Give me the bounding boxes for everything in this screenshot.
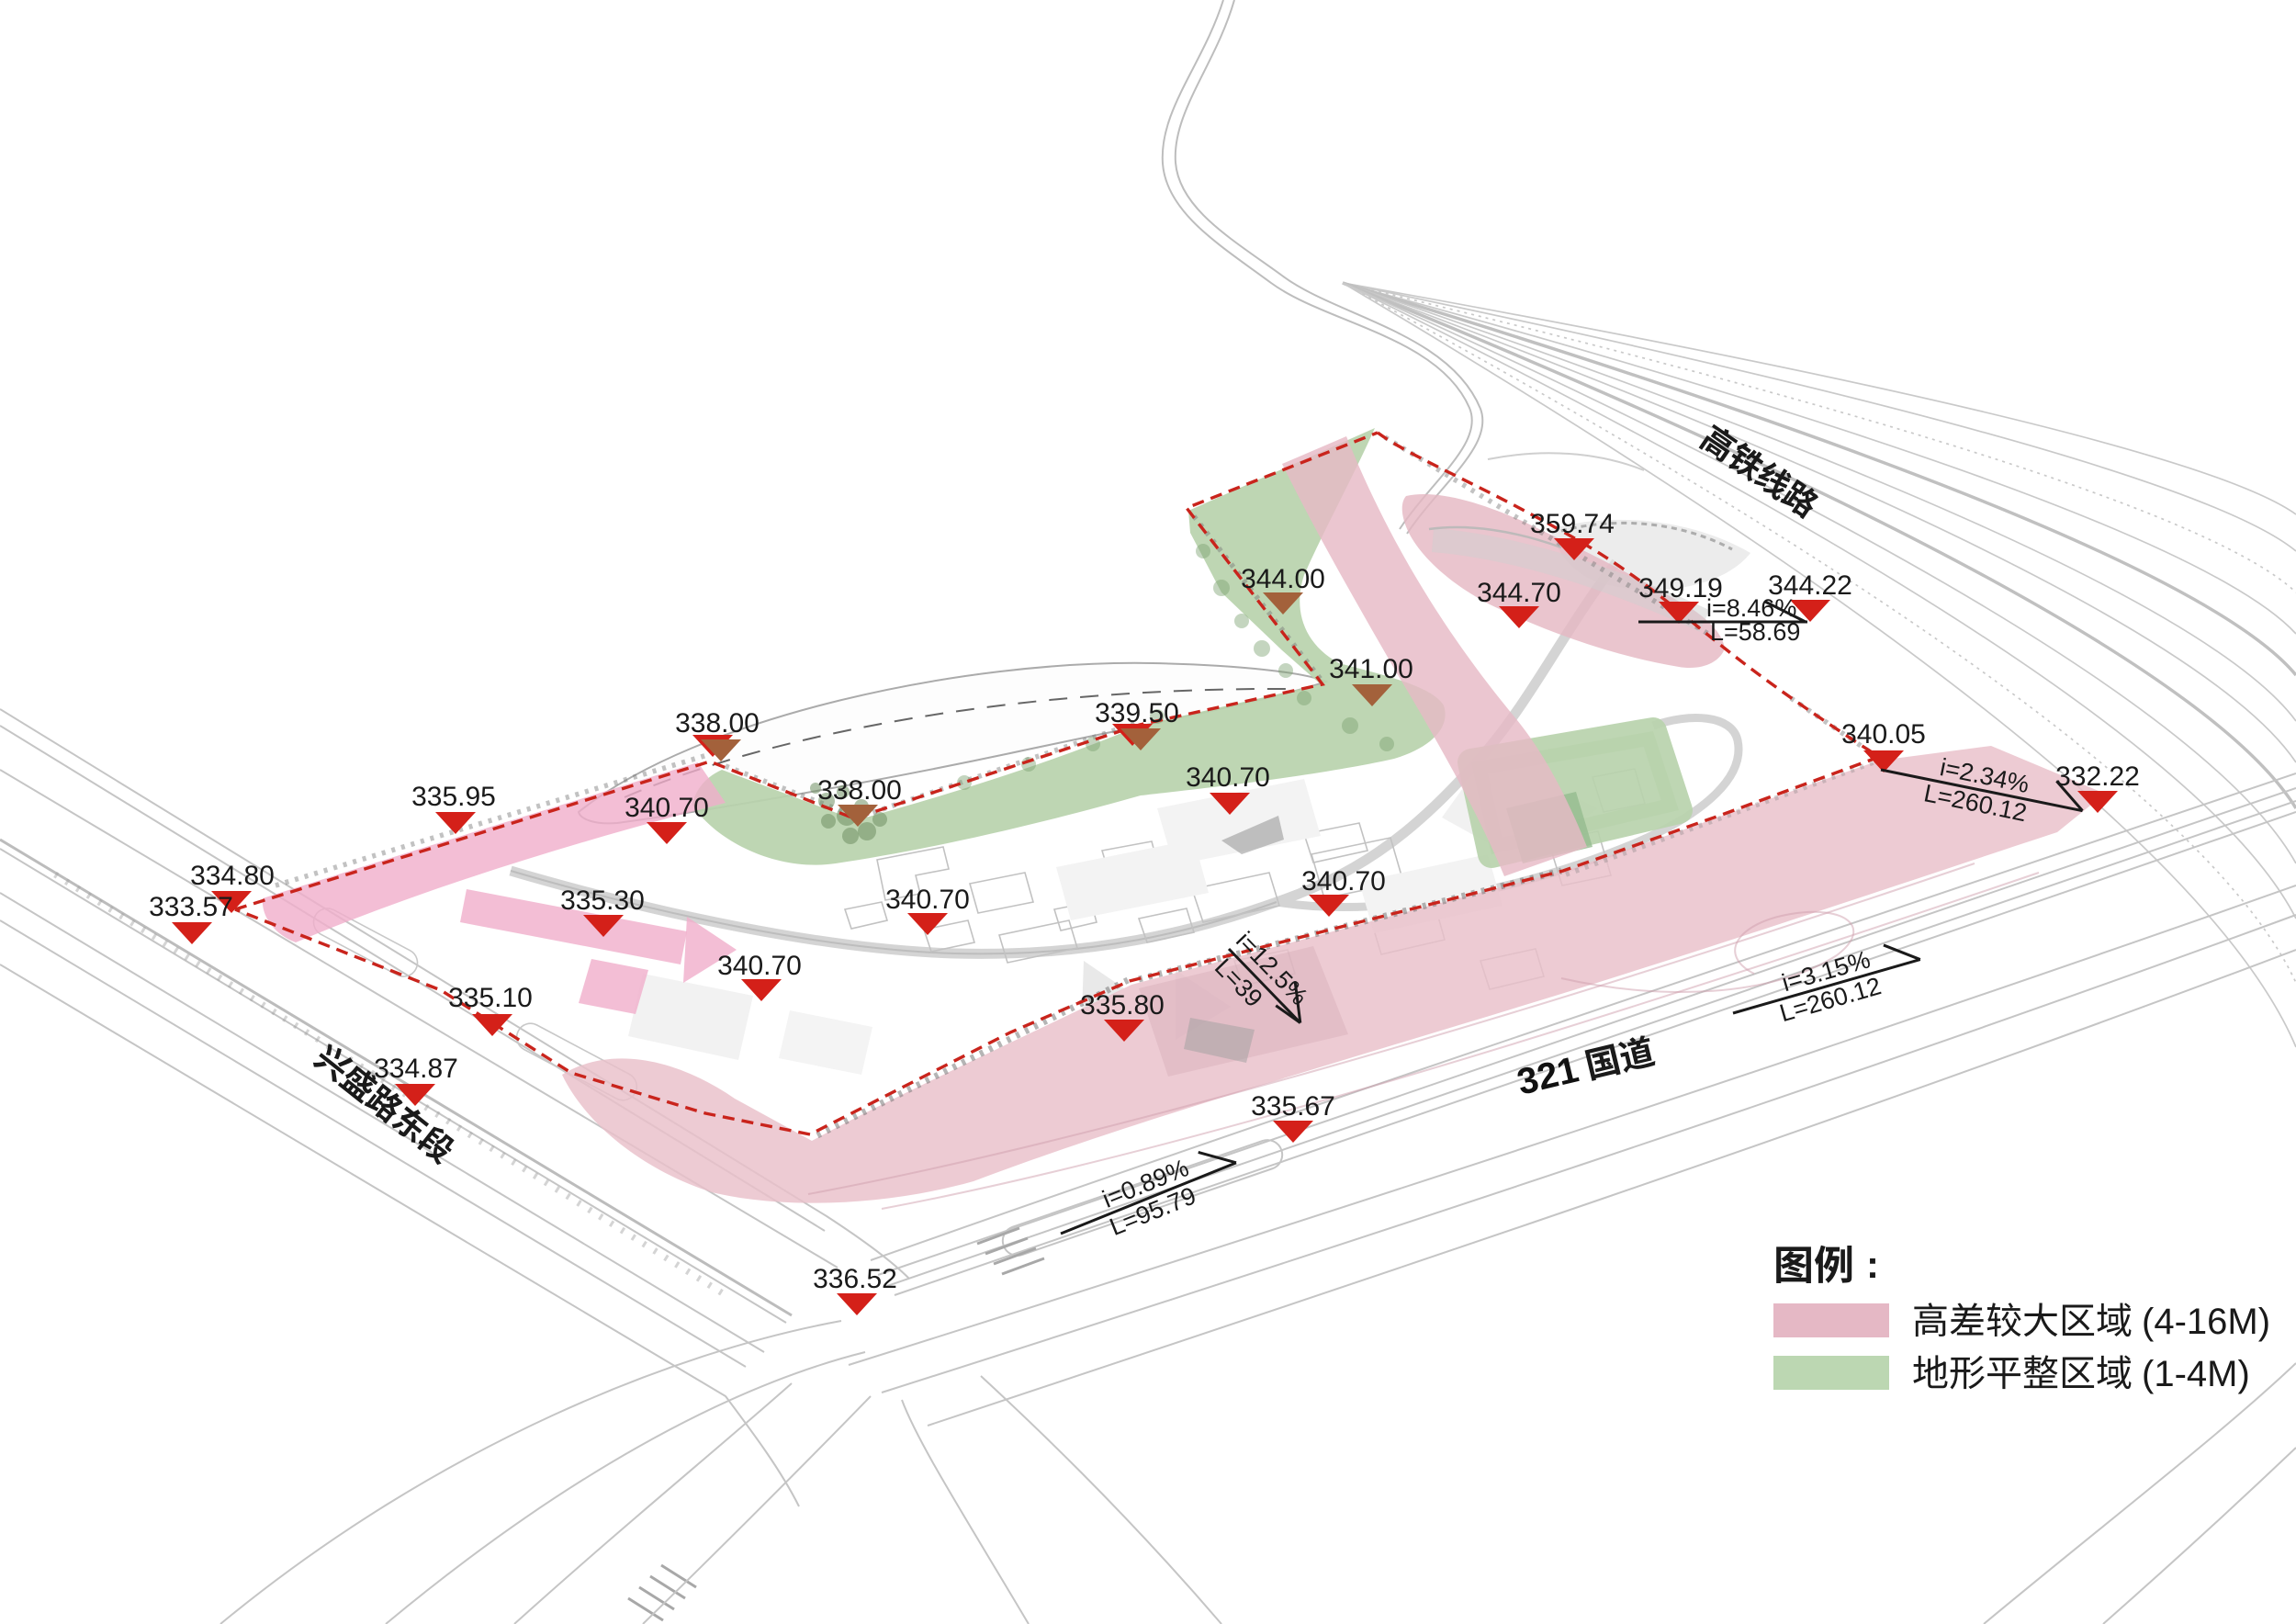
- svg-text::: :: [1866, 1243, 1879, 1286]
- svg-text:334.87: 334.87: [374, 1054, 458, 1084]
- svg-text:341.00: 341.00: [1329, 654, 1413, 684]
- svg-text:(4-16M): (4-16M): [2142, 1302, 2270, 1342]
- svg-text:334.80: 334.80: [190, 861, 275, 891]
- svg-text:332.22: 332.22: [2055, 761, 2140, 792]
- svg-text:340.70: 340.70: [1186, 762, 1270, 793]
- svg-text:335.80: 335.80: [1080, 990, 1165, 1021]
- svg-text:340.70: 340.70: [1301, 866, 1386, 897]
- svg-text:336.52: 336.52: [813, 1264, 897, 1294]
- svg-text:335.95: 335.95: [411, 782, 496, 812]
- svg-text:340.70: 340.70: [885, 885, 970, 915]
- svg-text:335.10: 335.10: [448, 983, 533, 1013]
- svg-text:340.05: 340.05: [1841, 719, 1926, 750]
- svg-text:344.70: 344.70: [1477, 578, 1561, 608]
- svg-text:340.70: 340.70: [717, 951, 802, 981]
- svg-text:338.00: 338.00: [817, 775, 902, 806]
- svg-text:359.74: 359.74: [1530, 509, 1615, 539]
- svg-text:333.57: 333.57: [149, 892, 233, 922]
- svg-text:L=58.69: L=58.69: [1710, 618, 1800, 646]
- svg-text:338.00: 338.00: [675, 708, 760, 739]
- svg-text:340.70: 340.70: [625, 793, 709, 823]
- svg-text:344.00: 344.00: [1241, 564, 1325, 594]
- svg-text:335.67: 335.67: [1251, 1091, 1335, 1122]
- svg-text:339.50: 339.50: [1095, 698, 1179, 728]
- svg-text:335.30: 335.30: [560, 885, 645, 916]
- svg-text:(1-4M): (1-4M): [2142, 1354, 2250, 1394]
